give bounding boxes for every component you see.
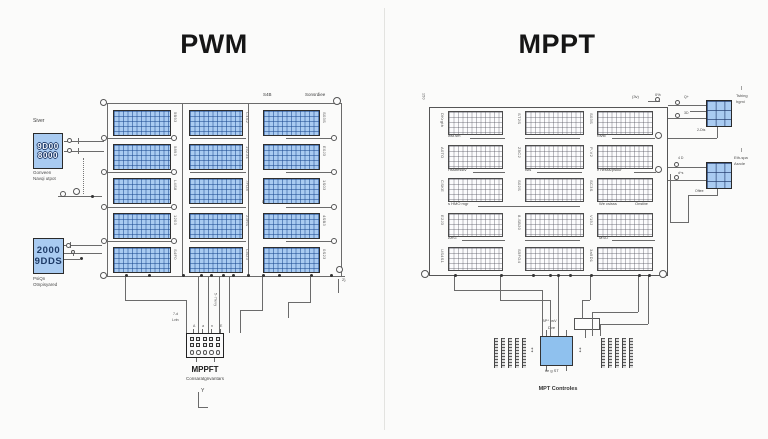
terminal-node (655, 132, 662, 139)
mppt-bus-dot (590, 274, 593, 277)
wire (670, 222, 689, 223)
wire (668, 118, 706, 119)
mppt-solar-panel (525, 111, 584, 135)
terminal-node (674, 162, 679, 167)
wire (338, 279, 339, 293)
updown-arrow-icon-right: ↕ (578, 345, 582, 354)
mppt-panel-label: S5FG4 (517, 249, 521, 263)
pwm-panel-label: S03S (322, 112, 326, 123)
wire (286, 207, 336, 208)
pwm-bus-dot (222, 274, 225, 277)
junction2-i-label: I (741, 149, 742, 155)
wire (600, 324, 648, 325)
controller-pin-square (196, 343, 200, 347)
terminal-node (101, 204, 107, 210)
pwm-solar-panel (189, 247, 243, 273)
pwm-bus-dot (330, 274, 333, 277)
wire (107, 138, 177, 139)
terminal-node (171, 135, 177, 141)
center-divider (384, 8, 385, 430)
wire (219, 276, 220, 333)
wire (198, 276, 199, 333)
terminal-node (331, 135, 337, 141)
terminal-node (100, 99, 107, 106)
pwm-bus-dot (232, 274, 235, 277)
mppt-panel-label: V15J (589, 215, 593, 225)
heatsink-bar-left (494, 338, 498, 368)
wire (690, 111, 706, 112)
pwm-bus-dot (125, 274, 128, 277)
mppt-bus-dot (454, 274, 457, 277)
wire (248, 103, 249, 276)
mppt-bus-dot (648, 274, 651, 277)
pwm-solar-panel (113, 247, 171, 273)
wire (193, 329, 194, 333)
wire (500, 276, 501, 300)
mppt-solar-panel (525, 145, 584, 169)
controller-pin-square (209, 343, 213, 347)
terminal-node (674, 175, 679, 180)
wire (198, 392, 199, 408)
wire (634, 172, 656, 173)
terminal-node (101, 135, 107, 141)
heatsink-bar-right (615, 338, 619, 368)
junction-box-1 (706, 100, 732, 127)
wire-tag-7d: 7-d (173, 313, 178, 317)
battery-display-box: 2000 9DDS (33, 238, 64, 274)
heatsink-bar-left (501, 338, 505, 368)
mppt-solar-panel (597, 247, 653, 271)
wire (190, 138, 246, 139)
pwm-panel-label: E0J3 (322, 146, 326, 156)
wire (64, 253, 102, 254)
mppt-bus-dot (500, 274, 503, 277)
mppt-panel-label: S02S (517, 180, 521, 191)
mppt-panel-label: P-V2 (589, 147, 593, 157)
junction1-note: 2-Dts (697, 129, 705, 133)
mppt-panel-label: ST2S (517, 113, 521, 124)
junction1-label-2: hgmi (736, 100, 745, 104)
wire (107, 103, 108, 276)
wire (196, 358, 197, 362)
terminal-node (675, 113, 680, 118)
mppt-solar-panel (597, 145, 653, 169)
inverter-display-line2: 8000 (38, 151, 58, 160)
wire (668, 105, 706, 106)
wire (638, 276, 639, 312)
terminal-node (73, 188, 80, 195)
wire (500, 300, 550, 301)
terminal-node (67, 138, 72, 143)
wire (582, 300, 590, 301)
controller-pin-square (196, 337, 200, 341)
pwm-panel-label: 1203 (173, 215, 177, 225)
pwm-panel-label: 0S23 (322, 249, 326, 260)
pwm-solar-panel (113, 213, 171, 239)
wire (668, 167, 706, 168)
junction1-i-label: I (741, 87, 742, 93)
wire (186, 300, 187, 333)
pwm-panel-label: 4SB3 (322, 215, 326, 226)
inverter-label: Siver (33, 119, 44, 125)
terminal-node (67, 148, 72, 153)
wire (208, 276, 209, 333)
pwm-controller-title: MPPFT (186, 365, 224, 374)
terminal-node (655, 97, 660, 102)
junction2-mark-1: 4 D (678, 157, 683, 161)
wire (107, 207, 177, 208)
battery-display-line1: 2000 (37, 245, 61, 256)
wire (537, 172, 582, 173)
pwm-panel-label: L4S8 (173, 180, 177, 191)
row3-caption-c: Onstbe (635, 202, 648, 206)
wire (125, 300, 186, 301)
mppt-solar-panel (597, 111, 653, 135)
wire (462, 240, 505, 241)
mppt-panel-label: 8-SB20 (517, 215, 521, 230)
pwm-solar-panel (113, 178, 171, 204)
mppt-panel-label: E2J3 (440, 215, 444, 225)
wire (220, 329, 221, 333)
wire (566, 366, 567, 371)
junction-dot (91, 195, 94, 198)
mppt-bus-dot (569, 274, 572, 277)
wire (202, 329, 203, 333)
wire (542, 290, 543, 336)
wire (310, 276, 311, 302)
wire (211, 329, 212, 333)
wire (546, 366, 547, 371)
wire (454, 290, 542, 291)
wire (592, 312, 638, 313)
terminal-node (336, 266, 343, 273)
mppt-panel-label: DKrgth (440, 113, 444, 127)
wire (107, 241, 177, 242)
mppt-panel-label: CSKE (440, 180, 444, 192)
junction2-note: Oftee (695, 190, 704, 194)
wire (107, 103, 341, 104)
pwm-bus-dot (148, 274, 151, 277)
row3-caption-a: s HMO mgr (448, 202, 468, 206)
terminal-node (655, 166, 662, 173)
controller-pin-square (216, 343, 220, 347)
junction2-label-2: Asrcle (734, 162, 745, 166)
wire (688, 195, 718, 196)
mppt-panel-label: A0TO (440, 147, 444, 159)
wire (78, 148, 79, 154)
pwm-solar-panel (263, 110, 320, 136)
terminal-node (171, 204, 177, 210)
junction1-mark-1: Q+ (684, 96, 689, 100)
wire (592, 312, 593, 336)
terminal-node (100, 272, 107, 279)
wire (668, 180, 706, 181)
wire (214, 358, 215, 362)
pwm-bus-label-sab: S4B (263, 93, 272, 98)
updown-arrow-icon-left: ↕ (530, 345, 534, 354)
mppt-solar-panel (448, 213, 503, 237)
wire (182, 103, 183, 276)
pwm-bus-dot (278, 274, 281, 277)
wire (240, 310, 241, 333)
pwm-solar-panel (263, 213, 320, 239)
mppt-panel-label: US4S1 (440, 249, 444, 263)
wire (470, 138, 505, 139)
junction-dot (80, 257, 83, 260)
mppt-solar-panel (448, 247, 503, 271)
heatsink-bar-right (601, 338, 605, 368)
heatsink-bar-left (522, 338, 526, 368)
battery-caption-2: Otnpisyared (33, 283, 57, 288)
pwm-bus-label-sonsrdiee: Sonsrdiee (305, 93, 325, 98)
pwm-solar-panel (263, 178, 320, 204)
wire (198, 407, 208, 408)
wire (525, 240, 580, 241)
pwm-bus-dot (182, 274, 185, 277)
mppt-solar-panel (597, 213, 653, 237)
mppt-bus-dot (549, 274, 552, 277)
terminal-node (171, 238, 177, 244)
wire (668, 138, 717, 139)
junction2-label-1: Eth-spa (734, 156, 748, 160)
wire (454, 276, 455, 290)
heatsink-bar-right (622, 338, 626, 368)
row3-caption-b: We csisss (599, 202, 617, 206)
pwm-solar-panel (263, 144, 320, 170)
terminal-node (659, 270, 667, 278)
terminal-node (171, 169, 177, 175)
inverter-display-box: 9D00 8000 (33, 133, 63, 169)
wire (78, 138, 79, 144)
wire (590, 276, 591, 300)
heatsink-bar-left (508, 338, 512, 368)
terminal-node (333, 97, 341, 105)
pwm-bus-dot (262, 274, 265, 277)
wire (582, 300, 583, 319)
wire (558, 276, 559, 336)
mppt-panel-label: S03S (589, 113, 593, 124)
mppt-panel-label: Z5C2 (517, 147, 521, 158)
junction1-label-1: Tshing (736, 94, 748, 98)
controller-pin-square (203, 337, 207, 341)
pwm-panel-label: 5893 (173, 146, 177, 156)
pwm-solar-panel (189, 144, 243, 170)
wire (288, 302, 311, 303)
controller-pin-square (209, 337, 213, 341)
mppt-panel-label: SC3S (589, 180, 593, 192)
wire (262, 276, 263, 310)
terminal-node (101, 238, 107, 244)
mppt-bus-dot (532, 274, 535, 277)
wire (125, 276, 126, 300)
junction1-mark-2: 3D (684, 112, 688, 116)
pwm-bus-dot (210, 274, 213, 277)
controller-pin-circle (190, 350, 195, 355)
mppt-title: MPPT (497, 29, 617, 60)
mppt-controller-box (540, 336, 573, 366)
battery-display-line2: 9DDS (35, 256, 63, 267)
pwm-panel-label: S4F0 (173, 249, 177, 260)
bracket-label: Y (201, 389, 204, 395)
mppt-corner-tag: 150 (421, 93, 425, 100)
pwm-solar-panel (113, 144, 171, 170)
wire (566, 330, 567, 336)
mppt-top-tag-3v: (3v) (632, 95, 639, 99)
terminal-node (331, 204, 337, 210)
wire (478, 206, 580, 207)
component-rect (574, 318, 600, 330)
wire (670, 174, 671, 222)
controller-pin-square (190, 343, 194, 347)
wire (286, 138, 336, 139)
wire (240, 310, 263, 311)
inverter-caption-2: Navqi utpot (33, 177, 56, 182)
terminal-node (421, 270, 429, 278)
wire (717, 127, 718, 138)
squiggle-wire (83, 158, 85, 194)
wire (648, 276, 649, 324)
mppt-solar-panel (525, 178, 584, 202)
mppt-panel-label: 3a5D1 (589, 249, 593, 262)
wire (473, 172, 505, 173)
wire (286, 172, 336, 173)
wire (600, 324, 601, 336)
controller-pin-circle (209, 350, 214, 355)
pwm-vs-mppt-diagram: PWM MPPT S4B Sonsrdiee Siver 9D00 8000 G… (0, 0, 768, 439)
pwm-bus-dot (247, 274, 250, 277)
pwm-title: PWM (154, 29, 274, 60)
pwm-bus-dot (200, 274, 203, 277)
terminal-node (60, 191, 66, 197)
wire (190, 241, 246, 242)
junction-box-2 (706, 162, 732, 189)
pwm-solar-panel (189, 213, 243, 239)
mppt-solar-panel (597, 178, 653, 202)
controller-pin-square (216, 337, 220, 341)
junction2-mark-2: d^s (678, 172, 683, 176)
wire (190, 172, 246, 173)
mppt-bus-dot (638, 274, 641, 277)
wire (612, 240, 655, 241)
wire (107, 172, 177, 173)
wire (688, 195, 689, 222)
mppt-solar-panel (448, 145, 503, 169)
mppt-controller-tag-bottom: tie g ST (545, 369, 559, 373)
mppt-solar-panel (525, 247, 584, 271)
wire (229, 276, 230, 333)
wire (612, 138, 655, 139)
pwm-panel-label: 5B93 (173, 112, 177, 123)
wire-tag-lvtn: Lvtn (172, 319, 179, 323)
terminal-node (101, 169, 107, 175)
controller-pin-square (203, 343, 207, 347)
controller-pin-circle (203, 350, 208, 355)
pwm-solar-panel (189, 178, 243, 204)
pwm-controller-subtitle: Consaratgnvantars (168, 376, 242, 381)
mppt-bus-dot (557, 274, 560, 277)
pwm-solar-panel (113, 110, 171, 136)
pwm-end-mark: 2} (342, 278, 346, 282)
wire-tag-vertical: 5-7levy (213, 293, 217, 306)
mppt-solar-panel (448, 111, 503, 135)
wire (585, 330, 586, 338)
wire (341, 103, 342, 276)
mppt-controller-caption: MPT Controles (528, 386, 588, 392)
mppt-solar-panel (525, 213, 584, 237)
pwm-solar-panel (263, 247, 320, 273)
wire (525, 138, 580, 139)
wire (190, 207, 246, 208)
wire (286, 241, 336, 242)
terminal-node (66, 243, 71, 248)
wire (288, 302, 289, 318)
heatsink-bar-right (608, 338, 612, 368)
wire (546, 330, 547, 336)
pwm-panel-label: 1S03 (322, 180, 326, 191)
terminal-node (71, 250, 75, 254)
mppt-solar-panel (448, 178, 503, 202)
controller-pin-circle (196, 350, 201, 355)
wire (64, 259, 80, 260)
terminal-node (331, 169, 337, 175)
inverter-display-line1: 9D00 (37, 142, 59, 151)
pwm-bus-dot (310, 274, 313, 277)
terminal-node (675, 100, 680, 105)
controller-pin-square (190, 337, 194, 341)
controller-pin-circle (216, 350, 221, 355)
wire (550, 300, 551, 336)
pwm-solar-panel (189, 110, 243, 136)
heatsink-bar-left (515, 338, 519, 368)
terminal-node (331, 238, 337, 244)
heatsink-bar-right (629, 338, 633, 368)
